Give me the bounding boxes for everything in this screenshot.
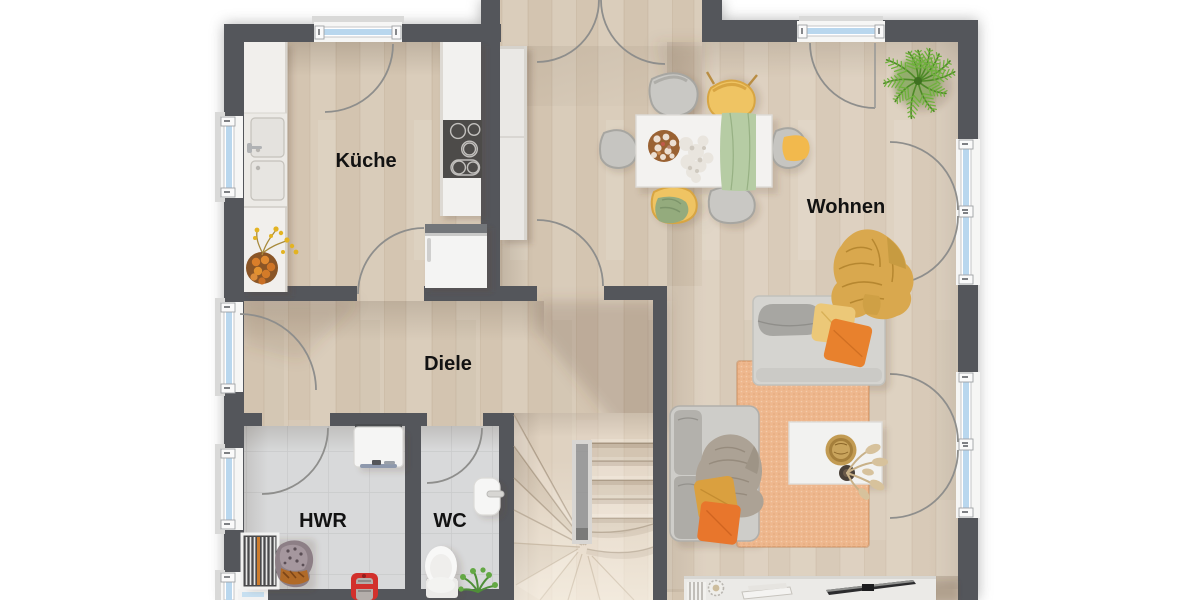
svg-text:WC: WC [433,510,466,532]
svg-text:Diele: Diele [424,353,472,375]
svg-text:Küche: Küche [335,150,396,172]
svg-text:HWR: HWR [299,510,347,532]
svg-text:Wohnen: Wohnen [807,196,886,218]
